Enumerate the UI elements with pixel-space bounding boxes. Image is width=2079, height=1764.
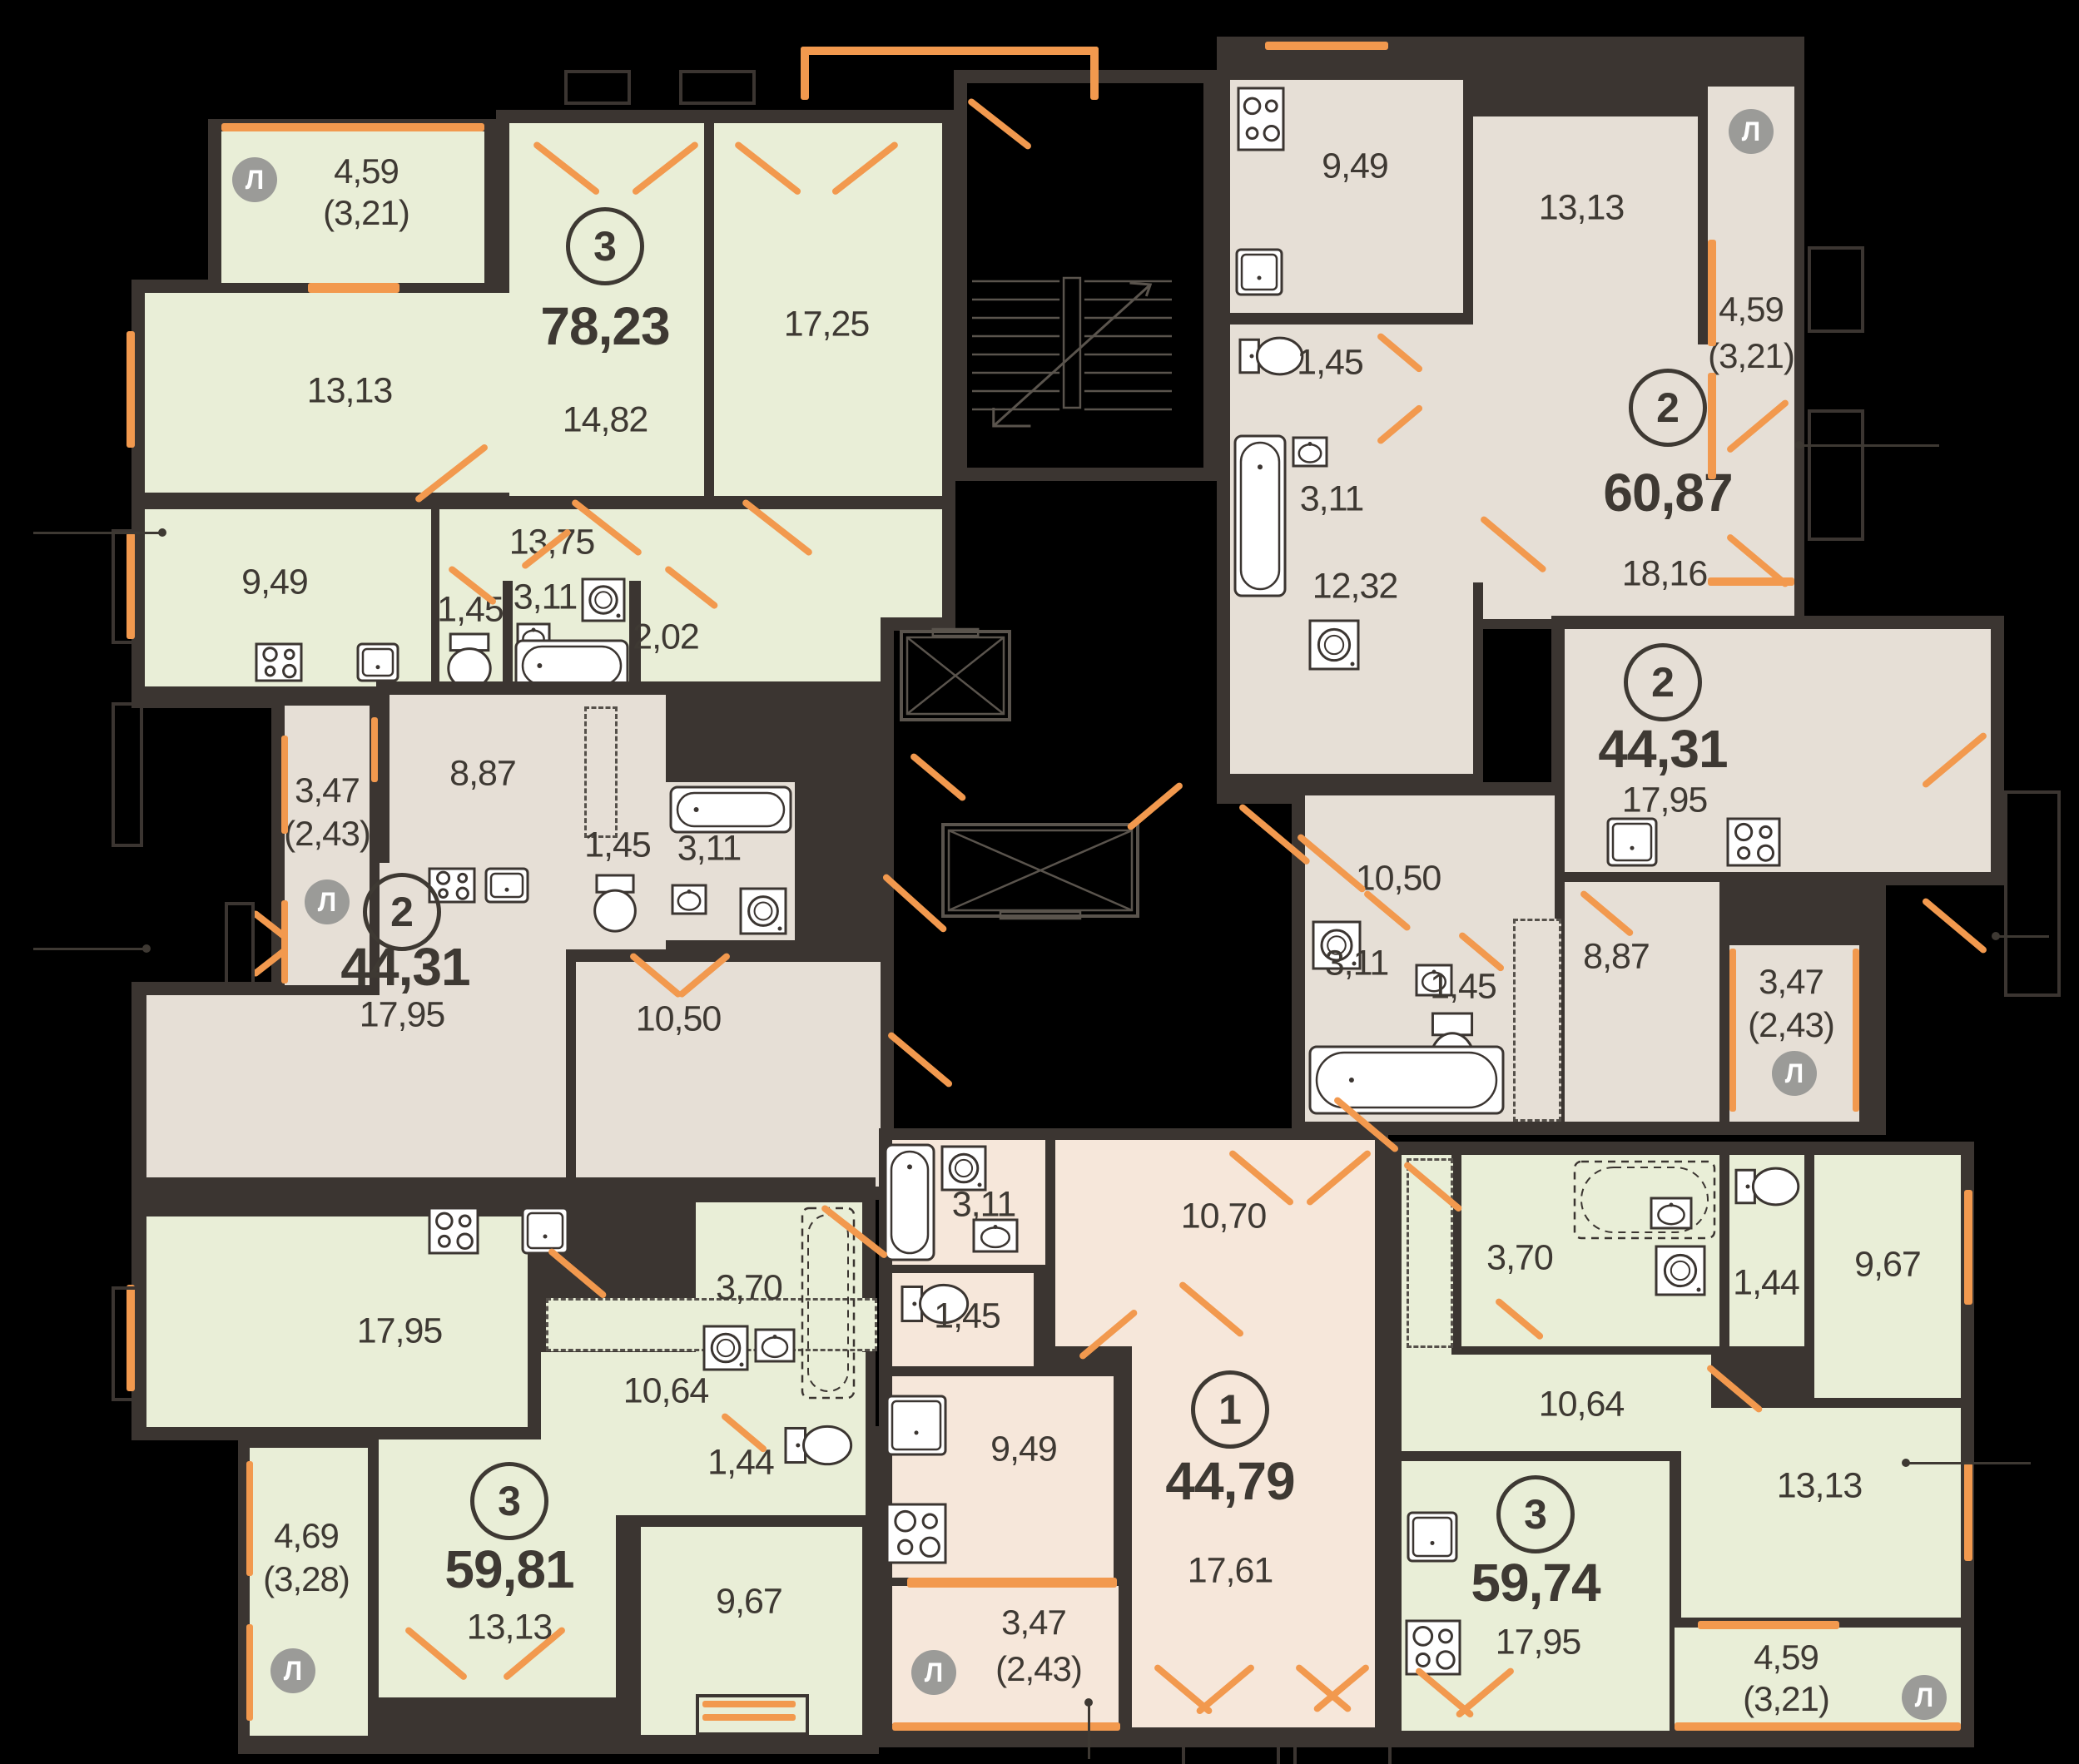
apt-3-7823-total-area: 78,23 — [540, 295, 669, 357]
apt-3-5974-number-circle: 3 — [1496, 1475, 1575, 1553]
apt-2-4431-left-total-area: 44,31 — [340, 936, 469, 998]
apt-3-7823-balcony-area: 4,59 — [334, 151, 399, 191]
stove-icon — [428, 1207, 479, 1255]
window-bay-outline — [1182, 1739, 1280, 1764]
apt-2-4431-right-room-8-87 — [1565, 882, 1719, 1122]
stove-icon — [255, 642, 303, 682]
window-bay-outline — [225, 902, 255, 995]
apt-2-4431-right-duct-dashed — [1513, 919, 1561, 1122]
apt-3-7823-number-circle: 3 — [566, 207, 644, 285]
annotation-dot — [1084, 1698, 1093, 1707]
window-marker — [1708, 373, 1716, 479]
window-marker — [1964, 1190, 1972, 1305]
apt-2-4431-left-balcony-area: 3,47 — [295, 771, 360, 810]
door-swing-marker — [1126, 781, 1183, 831]
apt-2-4431-right-room-area-label: 8,87 — [1583, 937, 1650, 978]
washing-machine-icon — [739, 887, 787, 935]
apt-3-5981-total-area: 59,81 — [444, 1539, 573, 1600]
apt-3-5981-number-circle: 3 — [470, 1462, 548, 1540]
window-marker — [1698, 1621, 1839, 1629]
apt-2-6087-room-area-label: 13,13 — [1539, 188, 1625, 229]
window-marker — [1265, 42, 1388, 50]
apt-1-4479-balcony-area-reduced: (2,43) — [995, 1649, 1082, 1689]
elevator-shaft-icon — [940, 822, 1140, 919]
annotation-dot — [1992, 932, 2000, 940]
window-bay-outline — [696, 1694, 809, 1736]
apt-2-4431-left-duct-dashed — [584, 706, 618, 838]
apt-2-4431-left-room-area-label: 3,11 — [677, 829, 742, 870]
apt-2-6087-balcony-area: 4,59 — [1719, 290, 1784, 330]
apt-2-4431-right-balcony-area-reduced: (2,43) — [1748, 1005, 1834, 1045]
kitchen-sink-icon — [356, 642, 399, 682]
loggia-badge: Л — [270, 1648, 315, 1693]
apt-3-5981-balcony-area: 4,69 — [274, 1516, 339, 1556]
stairwell-balcony-edge — [801, 47, 1099, 55]
window-marker — [1708, 240, 1716, 346]
apt-2-6087-balcony-area-reduced: (3,21) — [1708, 336, 1794, 376]
annotation-line — [1906, 1462, 2031, 1464]
window-marker — [221, 123, 484, 131]
apt-3-7823-room-area-label: 14,82 — [563, 400, 648, 441]
apt-3-5981-room-area-label: 17,95 — [357, 1311, 443, 1352]
window-bay-outline — [679, 70, 756, 105]
bathtub-icon — [884, 1143, 935, 1261]
stove-icon — [1405, 1619, 1461, 1676]
apt-2-4431-left-balcony-area-reduced: (2,43) — [284, 814, 370, 854]
window-bay-outline — [1293, 1739, 1392, 1764]
apt-3-7823-room-area-label: 13,13 — [307, 371, 393, 412]
annotation-line — [33, 948, 146, 950]
apt-3-7823-room-area-label: 9,49 — [241, 562, 308, 603]
apt-1-4479-balcony-area: 3,47 — [1001, 1603, 1066, 1643]
apt-3-7823-room-area-label: 1,45 — [437, 590, 504, 631]
bathtub-dashed-icon — [801, 1207, 856, 1400]
apt-1-4479-total-area: 44,79 — [1165, 1450, 1294, 1512]
washing-machine-icon — [581, 577, 626, 622]
toilet-icon — [784, 1423, 854, 1468]
door-swing-marker — [1921, 897, 1987, 954]
stove-icon — [1726, 817, 1781, 867]
stove-icon — [886, 1503, 947, 1564]
window-marker — [281, 736, 288, 834]
door-swing-marker — [909, 752, 966, 802]
window-bay-outline — [1808, 409, 1864, 541]
stairwell-balcony-edge — [1090, 47, 1099, 100]
annotation-dot — [158, 528, 166, 537]
apt-3-5974-room-area-label: 17,95 — [1496, 1623, 1581, 1663]
apt-3-7823-room-area-label: 17,25 — [784, 305, 870, 345]
apt-3-5974-room-area-label: 9,67 — [1854, 1245, 1921, 1286]
loggia-badge: Л — [911, 1650, 956, 1695]
stairs-icon — [969, 275, 1175, 438]
apt-1-4479-room-area-label: 3,11 — [952, 1185, 1016, 1226]
apt-3-5974-total-area: 59,74 — [1471, 1552, 1600, 1613]
kitchen-sink-icon — [484, 867, 529, 904]
apt-2-6087-room-area-label: 18,16 — [1622, 554, 1708, 595]
apt-3-5981-balcony-area-reduced: (3,28) — [263, 1559, 350, 1599]
apt-2-6087-room-area-label: 3,11 — [1300, 479, 1364, 520]
apt-1-4479-room-area-label: 9,49 — [990, 1430, 1057, 1470]
washbasin-icon — [671, 884, 707, 915]
window-marker — [1964, 1463, 1972, 1561]
annotation-line — [33, 532, 162, 534]
apt-3-5974-room-13-13 — [1681, 1408, 1961, 1618]
kitchen-sink-icon — [1235, 248, 1283, 296]
window-bay-outline — [112, 529, 143, 644]
annotation-dot — [1795, 441, 1804, 449]
apt-2-4431-left-hall-10-50 — [576, 962, 881, 1187]
window-bay-outline — [112, 1286, 143, 1401]
window-marker — [281, 900, 288, 984]
apt-2-4431-right-room-area-label: 3,11 — [1325, 944, 1389, 984]
window-marker — [246, 1624, 253, 1721]
annotation-line — [1996, 935, 2049, 938]
window-bay-outline — [564, 70, 631, 105]
kitchen-sink-icon — [521, 1207, 569, 1255]
loggia-badge: Л — [305, 880, 350, 924]
window-marker — [892, 1722, 1120, 1731]
loggia-badge: Л — [1729, 109, 1774, 154]
apt-1-4479-number-circle: 1 — [1191, 1370, 1269, 1449]
washbasin-icon — [754, 1328, 796, 1363]
apt-1-4479-room-area-label: 1,45 — [934, 1296, 1000, 1337]
apt-3-5974-balcony-area: 4,59 — [1754, 1638, 1819, 1677]
window-bay-outline — [2004, 790, 2061, 997]
kitchen-sink-icon — [1606, 817, 1658, 867]
floor-plan: 13,1314,8217,2513,759,491,453,112,02378,… — [0, 0, 2079, 1764]
washing-machine-icon — [702, 1325, 749, 1371]
apt-2-4431-right-room-area-label: 17,95 — [1622, 780, 1708, 821]
apt-2-6087-number-circle: 2 — [1629, 369, 1707, 447]
window-marker — [246, 1461, 253, 1576]
toilet-icon — [1238, 334, 1305, 378]
stairwell-balcony-edge — [801, 47, 809, 100]
apt-1-4479-room-area-label: 10,70 — [1181, 1197, 1267, 1237]
apt-2-4431-left-room-area-label: 8,87 — [449, 754, 516, 795]
apt-1-4479-room-area-label: 17,61 — [1188, 1551, 1273, 1592]
apt-2-4431-right-total-area: 44,31 — [1598, 718, 1727, 780]
apt-3-7823-balcony-area-reduced: (3,21) — [323, 193, 409, 233]
door-swing-marker — [886, 1031, 953, 1088]
kitchen-sink-icon — [886, 1395, 947, 1456]
apt-2-4431-right-balcony-area: 3,47 — [1759, 962, 1823, 1002]
apt-2-4431-left-room-area-label: 1,45 — [584, 825, 651, 866]
apt-3-7823-room-area-label: 2,02 — [633, 617, 699, 658]
window-marker — [907, 1578, 1117, 1588]
window-marker — [308, 283, 399, 293]
washbasin-icon — [1650, 1197, 1693, 1230]
annotation-line — [1088, 1702, 1090, 1759]
loggia-badge: Л — [1902, 1675, 1947, 1720]
apt-2-4431-left-room-area-label: 17,95 — [360, 995, 445, 1036]
annotation-line — [1799, 444, 1939, 447]
apt-3-5981-room-area-label: 10,64 — [623, 1371, 709, 1412]
apt-2-4431-right-number-circle: 2 — [1624, 643, 1702, 721]
apt-3-5974-room-area-label: 3,70 — [1486, 1238, 1553, 1279]
apt-3-5974-balcony-area-reduced: (3,21) — [1743, 1679, 1829, 1719]
window-bay-outline — [112, 702, 143, 847]
bathtub-icon — [1233, 434, 1287, 597]
window-bay-outline — [1808, 246, 1864, 333]
window-marker — [1675, 1722, 1961, 1731]
loggia-badge: Л — [232, 157, 277, 202]
bathtub-dashed-icon — [1573, 1160, 1716, 1240]
apt-2-4431-right-room-area-label: 1,45 — [1430, 967, 1496, 1008]
window-marker — [371, 717, 378, 782]
elevator-shaft-icon — [899, 629, 1012, 722]
bathtub-icon — [669, 785, 792, 834]
apt-2-4431-left-room-area-label: 10,50 — [636, 999, 722, 1040]
toilet-icon — [591, 874, 639, 934]
apt-2-4431-left-kitchen-17-95 — [146, 995, 566, 1187]
apt-3-7823-room-area-label: 3,11 — [514, 577, 578, 618]
washing-machine-icon — [1308, 619, 1360, 671]
kitchen-sink-icon — [1407, 1511, 1458, 1563]
window-marker — [127, 331, 135, 448]
apt-3-5974-room-area-label: 1,44 — [1733, 1263, 1799, 1304]
washing-machine-icon — [1655, 1245, 1706, 1296]
apt-3-5974-room-area-label: 13,13 — [1777, 1466, 1863, 1507]
window-marker — [1729, 949, 1736, 1112]
stove-icon — [1237, 87, 1285, 151]
apt-3-5981-room-area-label: 13,13 — [467, 1608, 553, 1648]
apt-2-6087-room-area-label: 9,49 — [1322, 146, 1388, 187]
apt-3-5981-room-area-label: 3,70 — [716, 1268, 782, 1309]
annotation-dot — [142, 944, 151, 953]
apt-3-5974-room-area-label: 10,64 — [1539, 1385, 1625, 1425]
washbasin-icon — [1292, 436, 1328, 468]
apt-2-6087-room-area-label: 12,32 — [1312, 567, 1398, 607]
apt-2-6087-room-area-label: 1,45 — [1297, 343, 1363, 384]
apt-3-5981-room-area-label: 9,67 — [716, 1582, 782, 1623]
window-marker — [1853, 949, 1859, 1112]
toilet-icon — [1734, 1165, 1801, 1208]
annotation-dot — [1902, 1459, 1910, 1467]
loggia-badge: Л — [1772, 1051, 1817, 1096]
